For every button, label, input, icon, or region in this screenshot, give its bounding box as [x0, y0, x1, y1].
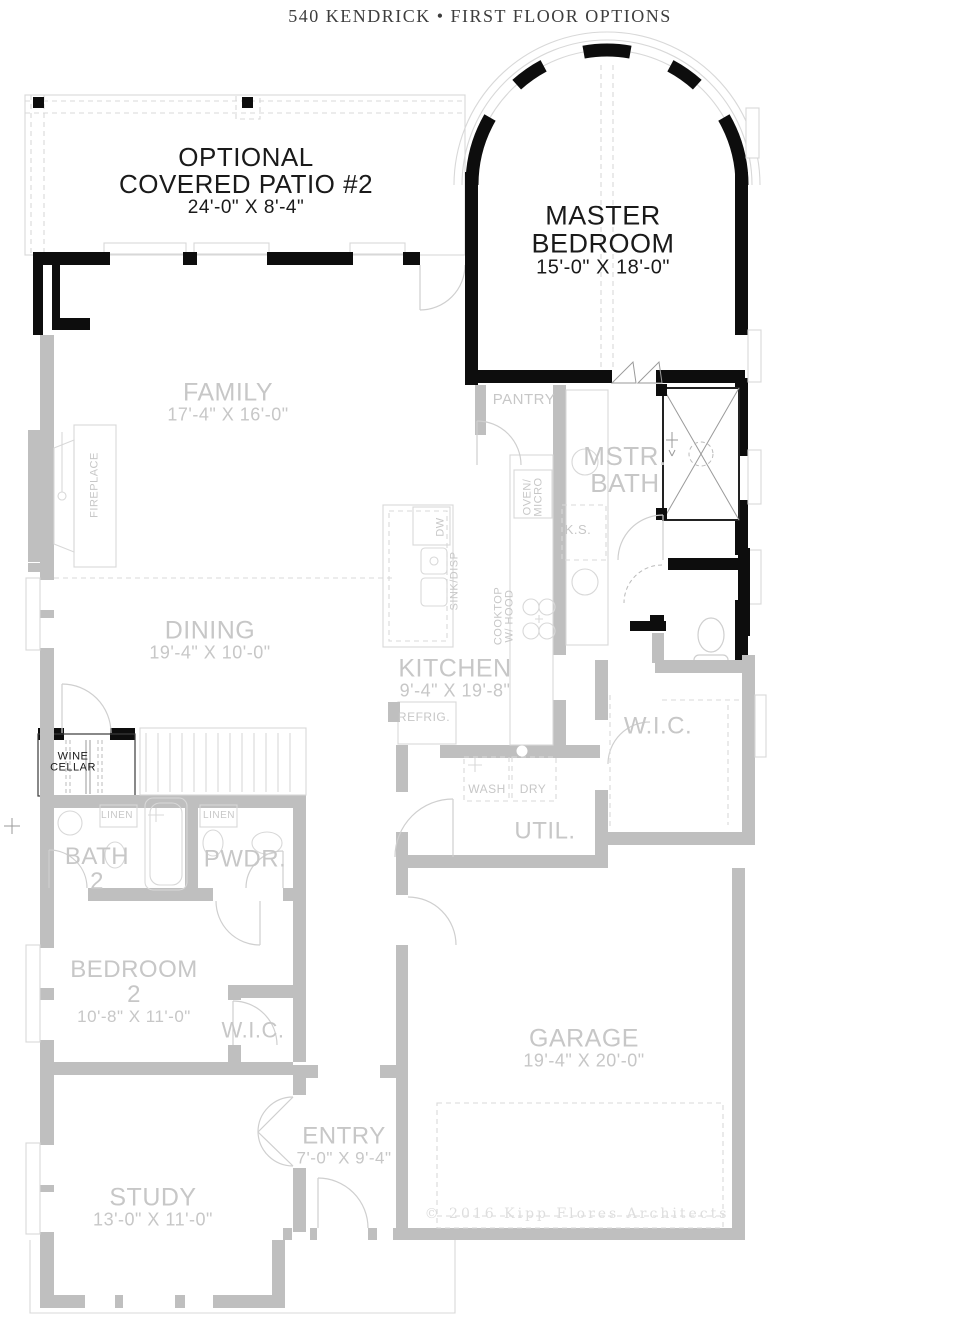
dry-label: DRY — [520, 783, 547, 795]
linen-2-label: LINEN — [203, 811, 235, 821]
fireplace-label: FIREPLACE — [89, 452, 100, 518]
optional-covered-patio-label: OPTIONALCOVERED PATIO #224'-0" X 8'-4" — [119, 144, 373, 218]
sink-disp-label: SINK/DISP — [449, 552, 460, 611]
master-shower-wc — [618, 384, 750, 671]
entry-label: ENTRY7'-0" X 9'-4" — [297, 1125, 392, 1168]
pantry-label: PANTRY — [493, 392, 555, 408]
dishwasher-label: DW — [435, 517, 446, 536]
patio-post — [33, 97, 44, 108]
mstr-bath-label: MSTR.BATH — [583, 443, 666, 497]
knee-space-label: K.S. — [565, 523, 592, 537]
refrig-label: REFRIG. — [398, 711, 450, 723]
copyright-text: © 2016 Kipp Flores Architects — [425, 1206, 730, 1222]
study-label: STUDY13'-0" X 11'-0" — [93, 1185, 213, 1230]
wash-label: WASH — [468, 783, 506, 795]
wic-master-label: W.I.C. — [624, 715, 692, 740]
wic-2-label: W.I.C. — [222, 1020, 285, 1043]
patio-post — [242, 97, 253, 108]
pwdr-label: PWDR. — [204, 848, 287, 873]
dining-label: DINING19'-4" X 10'-0" — [149, 618, 270, 663]
kitchen-label: KITCHEN9'-4" X 19'-8" — [398, 656, 511, 701]
fireplace — [54, 425, 116, 567]
floor-plan-page: 540 KENDRICK • FIRST FLOOR OPTIONS — [0, 0, 960, 1321]
master-bedroom-label: MASTERBEDROOM15'-0" X 18'-0" — [531, 202, 674, 279]
family-north-wall — [33, 252, 465, 335]
bath-2-label: BATH2 — [65, 845, 129, 895]
cooktop-hood-label: COOKTOPW/ HOOD — [494, 587, 517, 645]
linen-1-label: LINEN — [101, 811, 133, 821]
util-label: UTIL. — [514, 820, 575, 845]
stairs — [140, 728, 306, 795]
bedroom-2-label: BEDROOM210'-8" X 11'-0" — [70, 958, 198, 1026]
oven-micro-label: OVEN/MICRO — [523, 477, 546, 516]
garage-label: GARAGE19'-4" X 20'-0" — [523, 1026, 644, 1071]
family-label: FAMILY17'-4" X 16'-0" — [167, 380, 288, 425]
wine-cellar-label: WINECELLAR — [50, 752, 96, 775]
